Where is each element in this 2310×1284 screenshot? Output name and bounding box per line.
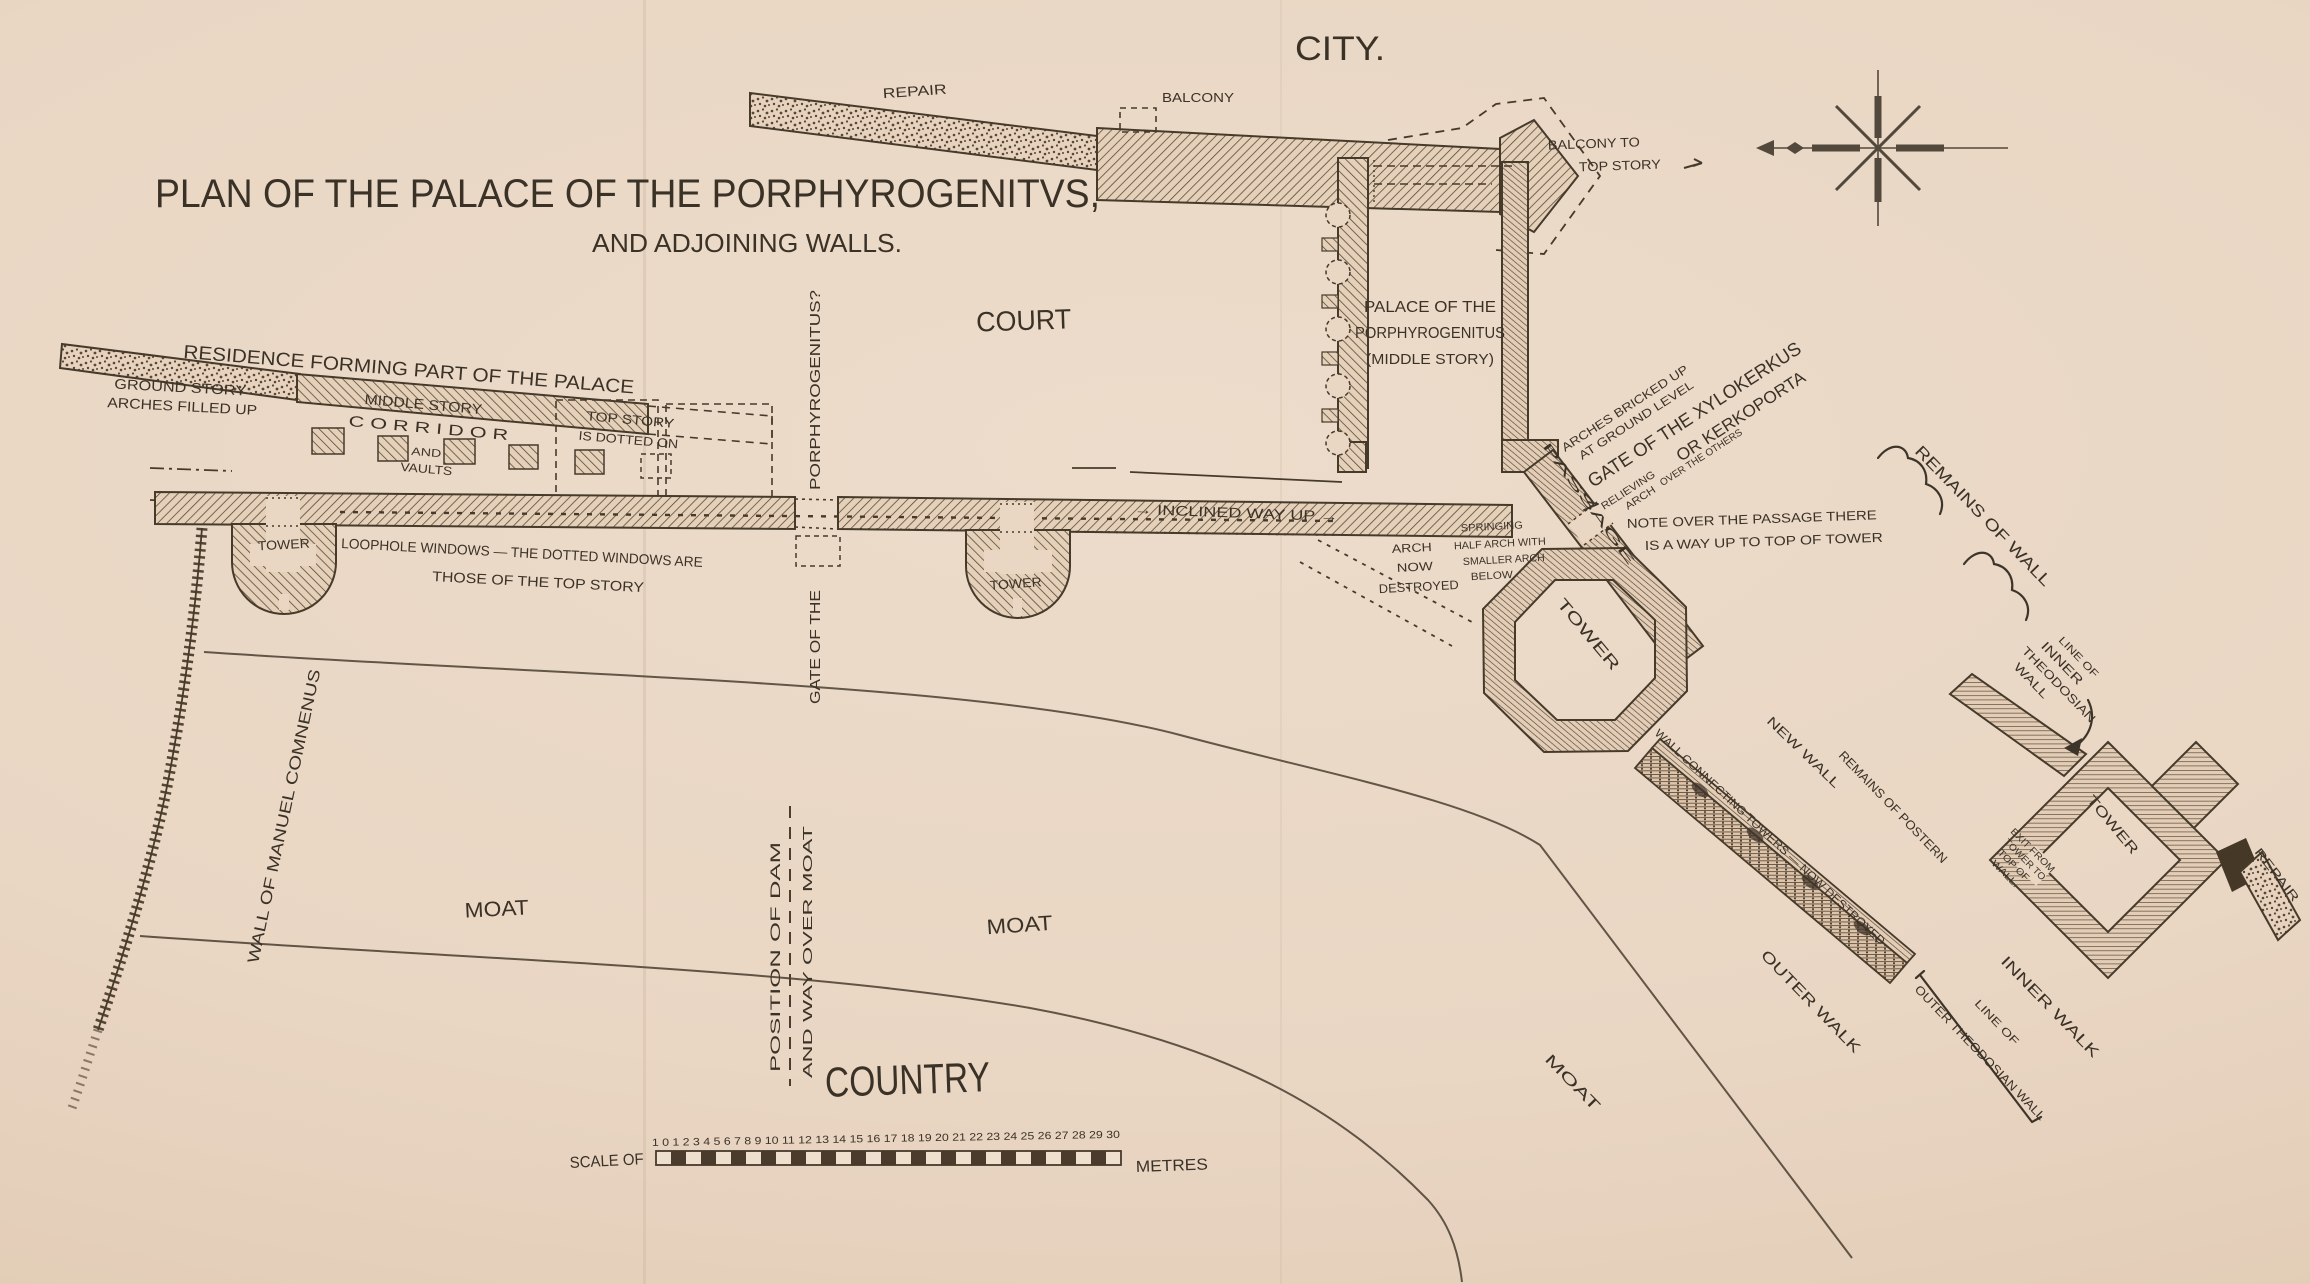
label-springing-2: HALF ARCH WITH: [1454, 536, 1547, 553]
inclined-way-lines: [1072, 468, 1342, 482]
label-loophole-1: LOOPHOLE WINDOWS — THE DOTTED WINDOWS AR…: [341, 535, 703, 570]
label-position-dam-2: AND WAY OVER MOAT: [801, 825, 815, 1078]
main-rampart: [155, 492, 1512, 566]
label-top-story-2: IS DOTTED ON: [578, 429, 679, 452]
page-title-line1: PLAN OF THE PALACE OF THE PORPHYROGENITV…: [155, 172, 1100, 216]
repair-wall-segment: [750, 93, 1097, 170]
label-moat-right: MOAT: [1541, 1051, 1603, 1115]
label-palace-3: (MIDDLE STORY): [1366, 351, 1494, 368]
label-country: COUNTRY: [824, 1053, 991, 1106]
label-gate-porph-1: PORPHYROGENITUS?: [807, 290, 824, 490]
label-moat-left: MOAT: [464, 896, 529, 922]
label-court: COURT: [976, 303, 1072, 337]
balcony-dashed-box: [1120, 108, 1156, 132]
label-balcony-to-2: TOP STORY: [1579, 157, 1662, 175]
tower-middle-slit: [1013, 598, 1022, 616]
gate-dashed-outline: [796, 536, 840, 566]
label-moat-mid: MOAT: [986, 912, 1054, 940]
palace-east-wall: [1502, 162, 1528, 468]
page-title-line2: AND ADJOINING WALLS.: [592, 228, 902, 258]
label-note-1: NOTE OVER THE PASSAGE THERE: [1627, 507, 1878, 531]
tower-left-slit: [279, 594, 289, 610]
label-corridor-and: AND: [411, 446, 442, 461]
label-balcony: BALCONY: [1162, 91, 1235, 105]
label-arch-destroyed-2: NOW: [1396, 559, 1434, 575]
scale-bar-unit: METRES: [1136, 1156, 1209, 1176]
label-city: CITY.: [1295, 30, 1385, 68]
gate-porphyrogenitus-dotted: [795, 499, 838, 529]
manuel-wall-tail: [72, 1030, 98, 1108]
scale-bar-prefix: SCALE OF: [569, 1151, 644, 1172]
label-position-dam-1: POSITION OF DAM: [767, 842, 783, 1072]
label-remains-postern: REMAINS OF POSTERN: [1836, 748, 1950, 866]
compass-diamond: [1786, 142, 1804, 154]
label-remains-wall: REMAINS OF WALL: [1911, 443, 2054, 590]
label-gate-porph-2: GATE OF THE: [807, 590, 824, 704]
octagonal-tower: [1483, 548, 1687, 752]
manuel-wall-hatching: [98, 528, 202, 1030]
plan-drawing: 1 0 1 2 3 4 5 6 7 8 9 10 11 12 13 14 15 …: [0, 0, 2310, 1284]
label-outer-walk: OUTER WALK: [1757, 947, 1864, 1057]
label-arch-destroyed-1: ARCH: [1391, 540, 1432, 556]
wall-of-manuel-comnenus: [72, 528, 202, 1108]
tower-middle-chamber: [984, 550, 1052, 572]
label-arch-destroyed-3: DESTROYED: [1378, 578, 1459, 596]
balcony-arrow-icon: [1684, 159, 1702, 168]
scanned-plan-page: 1 0 1 2 3 4 5 6 7 8 9 10 11 12 13 14 15 …: [0, 0, 2310, 1284]
label-new-wall: NEW WALL: [1764, 713, 1843, 790]
label-loophole-2: THOSE OF THE TOP STORY: [432, 568, 645, 595]
label-springing-4: BELOW: [1471, 569, 1514, 583]
scale-bar-ruler: [656, 1151, 1121, 1165]
label-tower-left: TOWER: [257, 536, 310, 554]
city-wall-segment: [1097, 128, 1500, 212]
label-repair-top: REPAIR: [882, 81, 947, 101]
label-palace-2: PORPHYROGENITUS: [1355, 325, 1505, 342]
manuel-wall-edge: [98, 528, 202, 1030]
label-springing-1: SPRINGING: [1461, 519, 1524, 534]
label-tower-oct: TOWER: [1553, 596, 1623, 674]
compass-icon: [1756, 70, 2008, 226]
label-note-2: IS A WAY UP TO TOP OF TOWER: [1645, 530, 1883, 553]
scale-bar-ticks: 1 0 1 2 3 4 5 6 7 8 9 10 11 12 13 14 15 …: [652, 1129, 1120, 1149]
compass-west-arrowhead: [1756, 140, 1774, 156]
label-wall-manuel: WALL OF MANUEL COMNENUS: [245, 668, 324, 965]
label-balcony-to-1: BALCONY TO: [1548, 134, 1640, 152]
scale-bar: 1 0 1 2 3 4 5 6 7 8 9 10 11 12 13 14 15 …: [569, 1129, 1208, 1176]
label-palace-1: PALACE OF THE: [1364, 299, 1496, 316]
